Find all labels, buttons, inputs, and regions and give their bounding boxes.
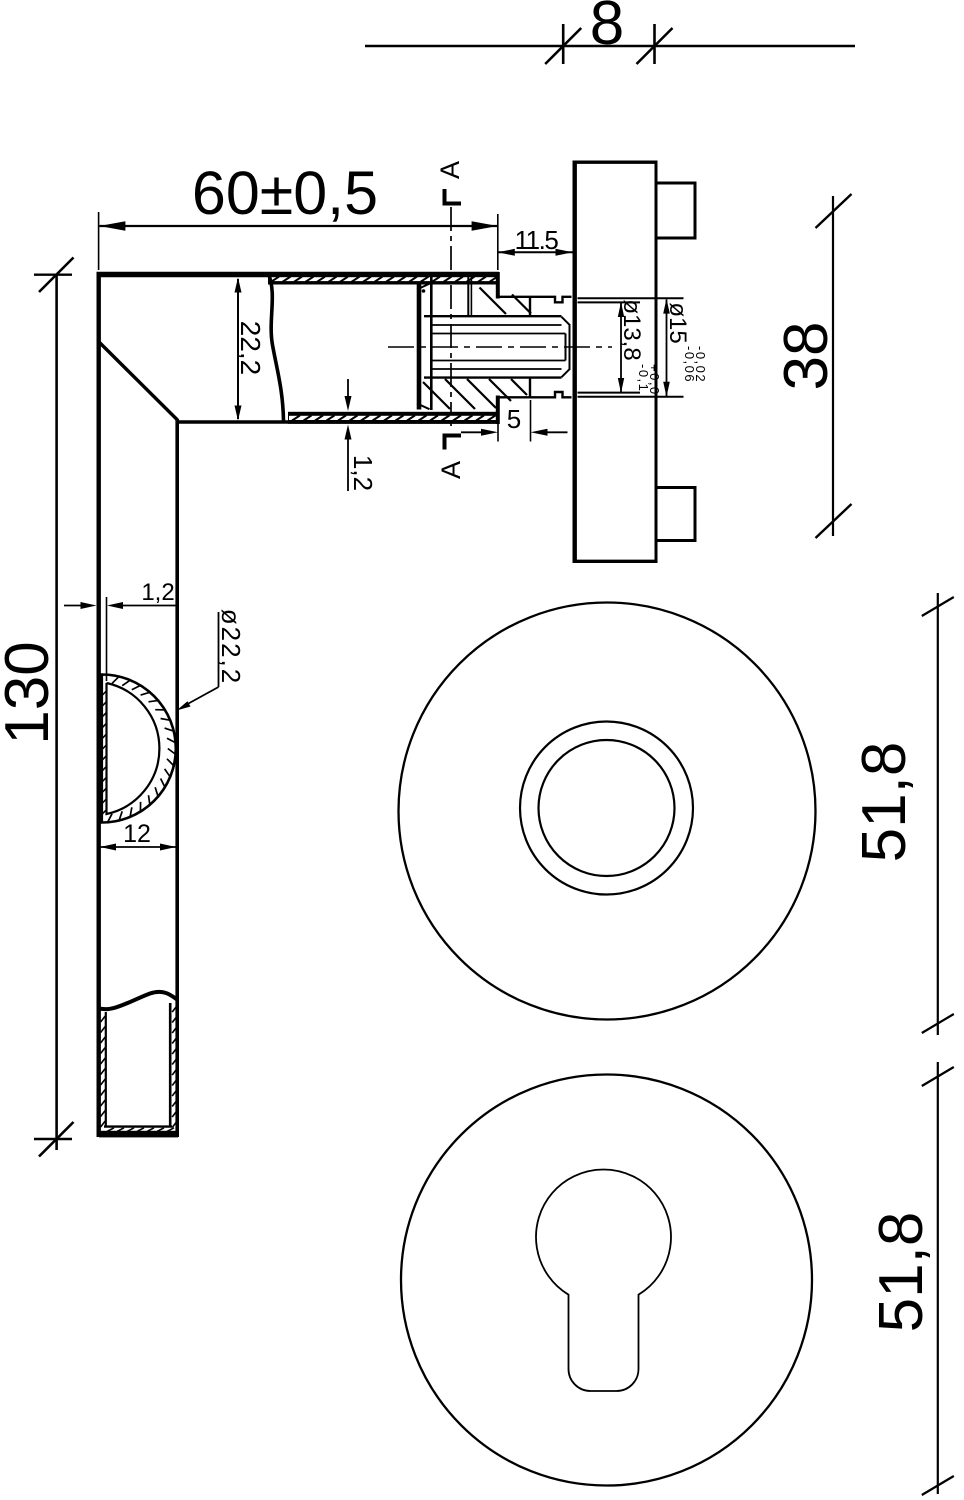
svg-text:51,8: 51,8 (867, 1212, 936, 1333)
svg-text:A: A (436, 461, 466, 479)
svg-text:ø15: ø15 (664, 302, 691, 343)
svg-text:38: 38 (772, 322, 841, 391)
svg-text:A: A (435, 161, 465, 179)
svg-text:ø13,8: ø13,8 (618, 299, 645, 360)
svg-text:11.5: 11.5 (515, 225, 559, 255)
svg-text:51,8: 51,8 (850, 742, 919, 863)
svg-text:1,2: 1,2 (348, 455, 378, 491)
svg-text:12: 12 (123, 820, 151, 848)
svg-text:130: 130 (0, 641, 62, 744)
svg-text:-0,1: -0,1 (636, 364, 651, 392)
svg-text:1,2: 1,2 (141, 579, 174, 606)
svg-text:ø22,2: ø22,2 (216, 609, 246, 686)
svg-text:60±0,5: 60±0,5 (192, 159, 378, 227)
svg-text:8: 8 (590, 0, 624, 58)
svg-text:-0,06: -0,06 (682, 346, 697, 383)
svg-text:5: 5 (507, 404, 521, 434)
svg-text:22,2: 22,2 (235, 321, 266, 376)
